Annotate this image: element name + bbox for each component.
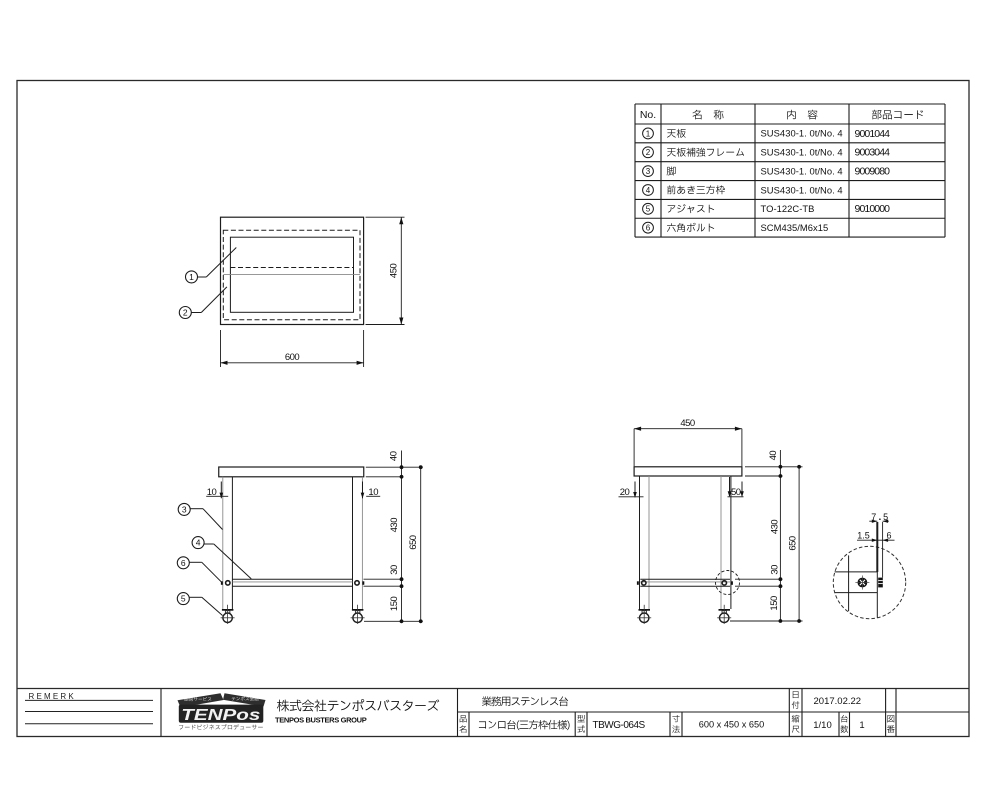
svg-text:4: 4 — [196, 538, 201, 548]
svg-text:1: 1 — [189, 272, 194, 282]
svg-text:4: 4 — [646, 186, 651, 195]
svg-text:6: 6 — [181, 558, 186, 568]
svg-text:TO-122C-TB: TO-122C-TB — [761, 203, 815, 214]
svg-text:2017.02.22: 2017.02.22 — [814, 696, 862, 707]
svg-text:2: 2 — [646, 148, 651, 157]
svg-text:7: 7 — [871, 512, 876, 522]
svg-text:10: 10 — [368, 487, 378, 498]
svg-text:SUS430-1. 0t/No. 4: SUS430-1. 0t/No. 4 — [761, 184, 843, 195]
svg-text:600: 600 — [285, 352, 300, 363]
svg-text:30: 30 — [389, 565, 400, 575]
svg-text:450: 450 — [680, 418, 695, 429]
svg-text:6: 6 — [886, 531, 891, 541]
svg-text:650: 650 — [788, 536, 799, 551]
svg-text:430: 430 — [770, 520, 781, 535]
svg-text:SUS430-1. 0t/No. 4: SUS430-1. 0t/No. 4 — [761, 147, 843, 158]
svg-text:430: 430 — [389, 518, 400, 533]
svg-text:No.: No. — [640, 109, 656, 121]
svg-text:40: 40 — [388, 451, 399, 461]
svg-text:650: 650 — [408, 535, 419, 550]
svg-text:50: 50 — [731, 487, 741, 498]
svg-text:10: 10 — [207, 487, 217, 498]
svg-text:40: 40 — [768, 451, 779, 461]
svg-text:600 x 450 x 650: 600 x 450 x 650 — [699, 720, 764, 730]
svg-text:TENPOS BUSTERS GROUP: TENPOS BUSTERS GROUP — [275, 716, 367, 725]
svg-text:1: 1 — [859, 720, 864, 731]
svg-text:TBWG-064S: TBWG-064S — [593, 720, 646, 731]
svg-text:9003044: 9003044 — [855, 147, 891, 159]
svg-text:REMERK: REMERK — [29, 692, 76, 701]
svg-text:9009080: 9009080 — [855, 166, 891, 178]
svg-text:5: 5 — [181, 594, 186, 604]
svg-text:6: 6 — [646, 224, 651, 233]
svg-text:9001044: 9001044 — [855, 128, 891, 140]
svg-text:9010000: 9010000 — [855, 203, 891, 215]
svg-text:450: 450 — [389, 264, 400, 279]
svg-text:20: 20 — [620, 487, 630, 498]
svg-text:SUS430-1. 0t/No. 4: SUS430-1. 0t/No. 4 — [761, 128, 843, 139]
svg-text:150: 150 — [769, 596, 780, 611]
svg-text:2: 2 — [183, 308, 188, 318]
svg-text:SCM435/M6x15: SCM435/M6x15 — [761, 222, 829, 233]
svg-text:5: 5 — [883, 512, 888, 522]
svg-text:30: 30 — [769, 565, 780, 575]
svg-text:1/10: 1/10 — [813, 720, 832, 731]
svg-text:TENPos: TENPos — [181, 707, 260, 724]
svg-text:1: 1 — [646, 129, 651, 138]
svg-text:SUS430-1. 0t/No. 4: SUS430-1. 0t/No. 4 — [761, 165, 843, 176]
svg-text:150: 150 — [389, 597, 400, 612]
svg-text:3: 3 — [646, 167, 651, 176]
svg-text:1.5: 1.5 — [857, 531, 870, 541]
svg-text:5: 5 — [646, 205, 651, 214]
svg-text:3: 3 — [182, 505, 187, 515]
